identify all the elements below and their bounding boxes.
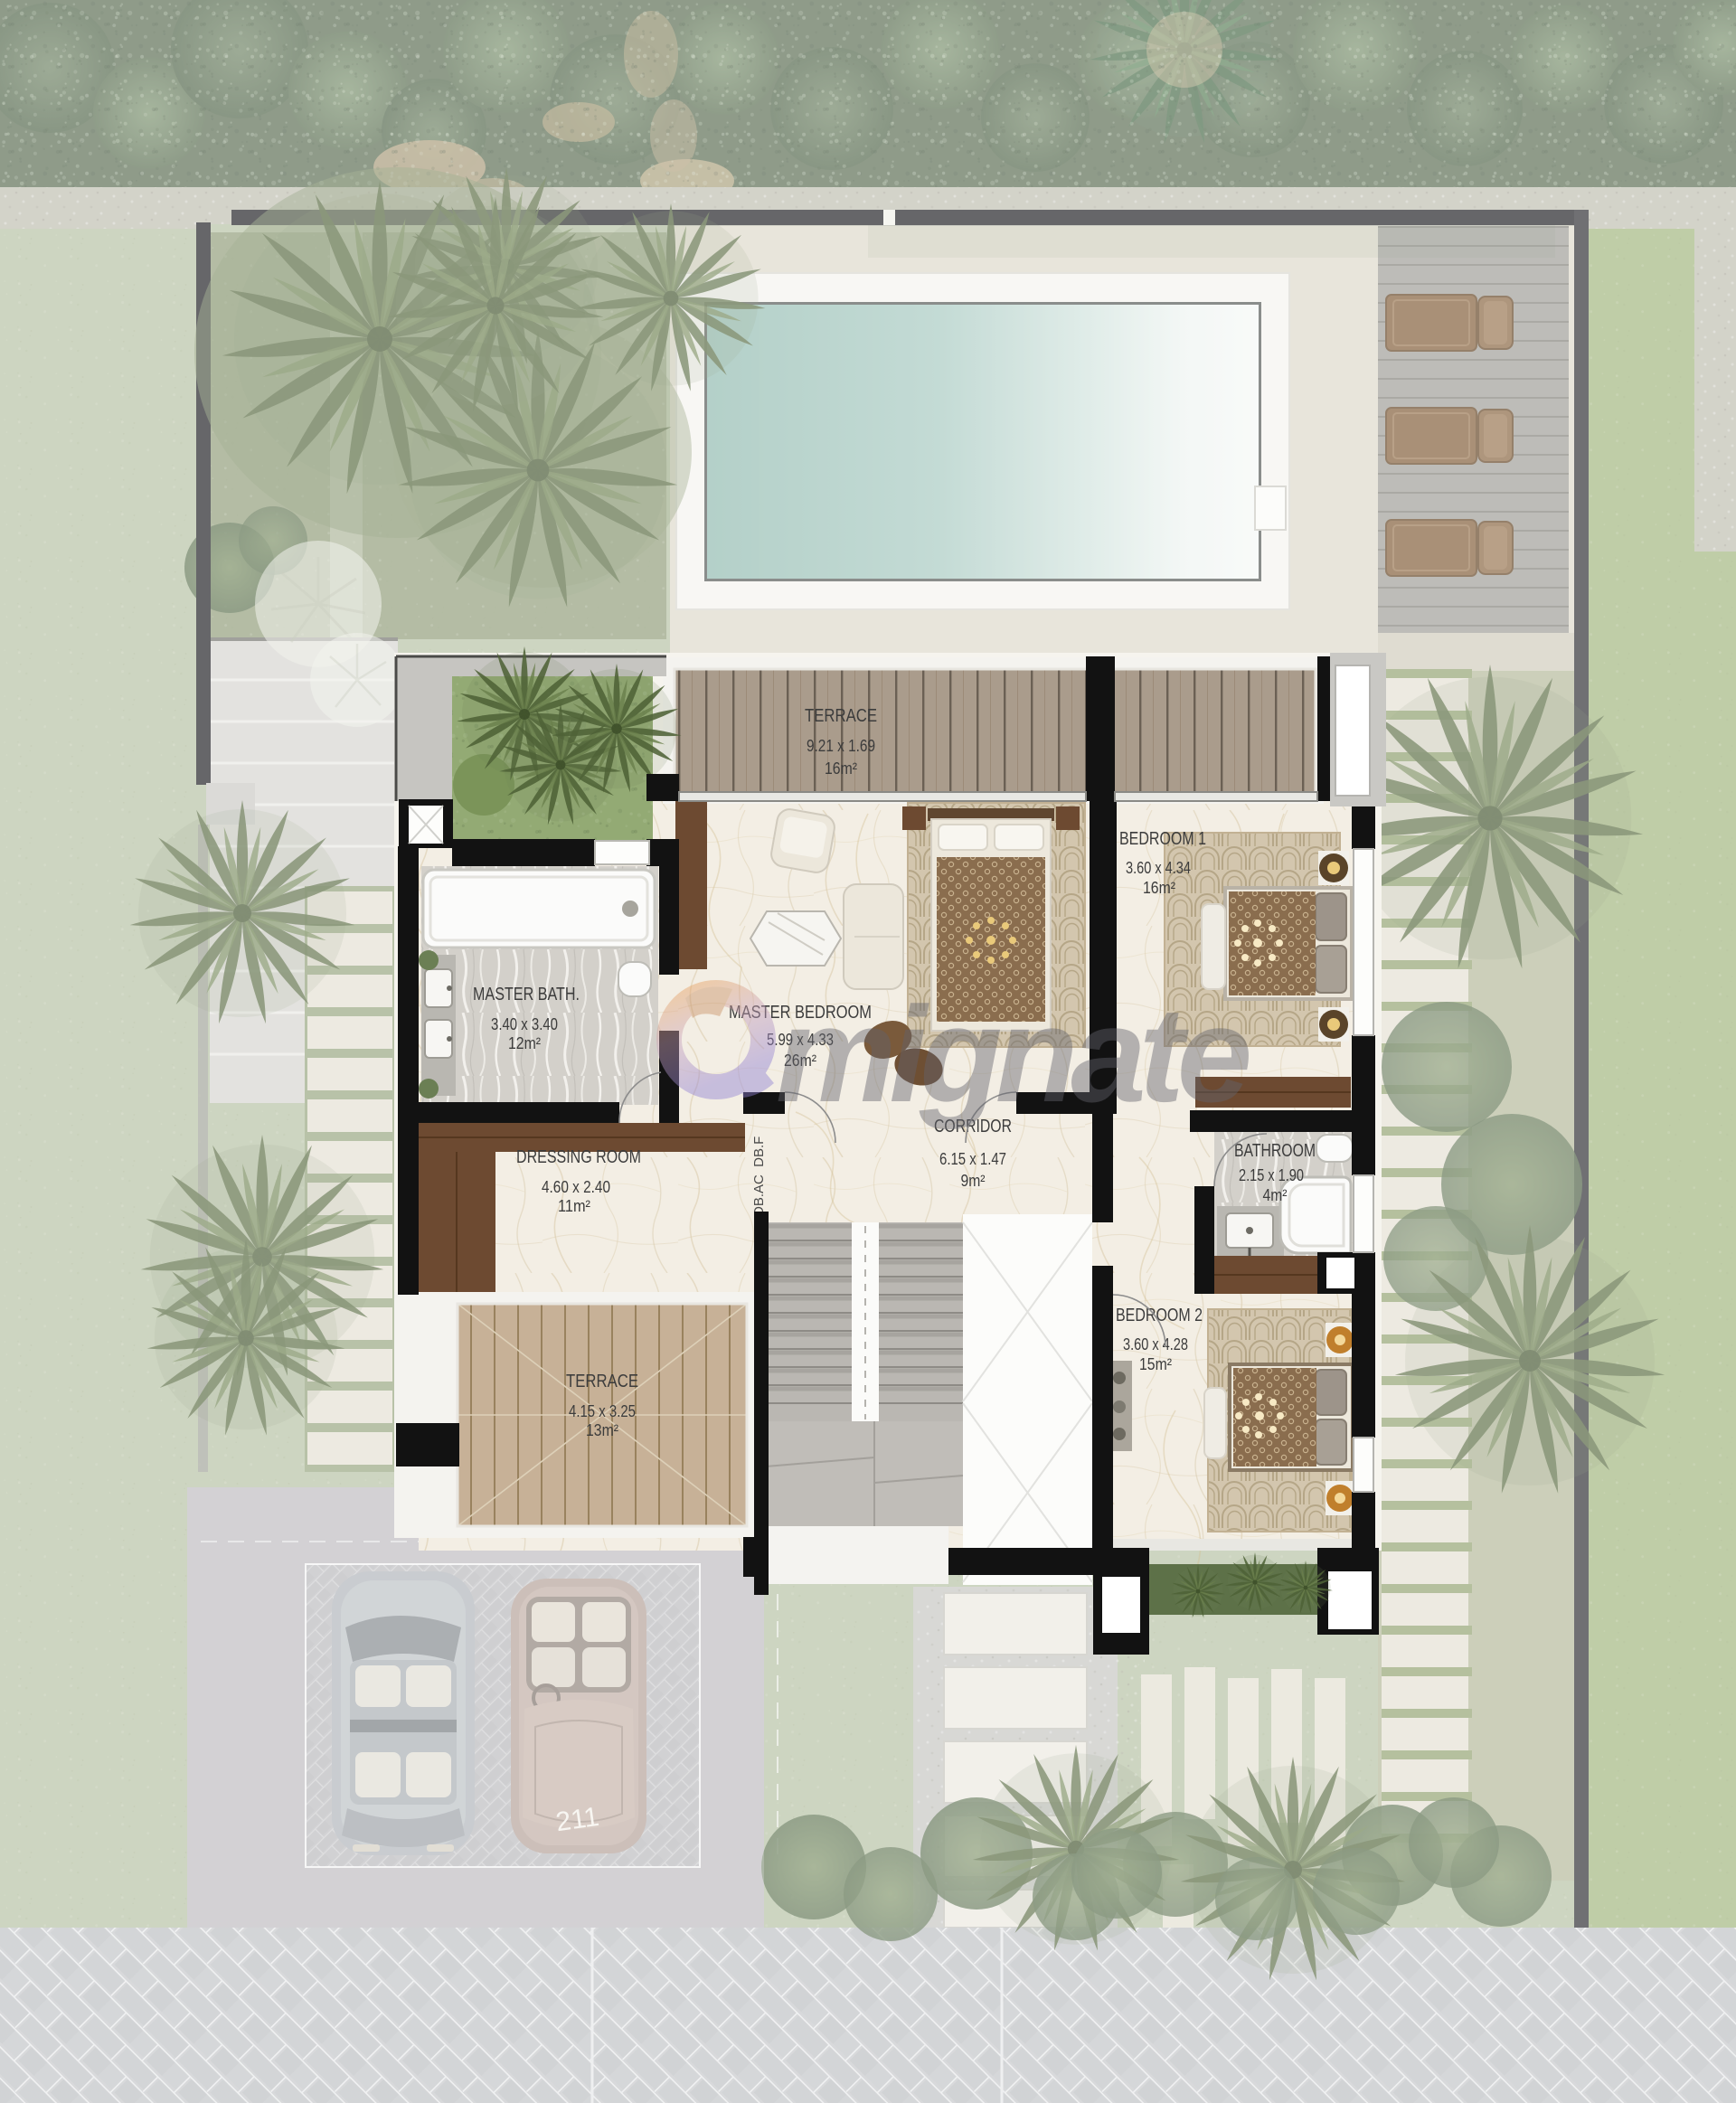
svg-text:4m²: 4m² bbox=[1263, 1186, 1288, 1204]
svg-text:BEDROOM 1: BEDROOM 1 bbox=[1119, 829, 1206, 849]
svg-text:3.60 x 4.34: 3.60 x 4.34 bbox=[1126, 859, 1191, 877]
svg-text:15m²: 15m² bbox=[1139, 1355, 1172, 1373]
svg-text:16m²: 16m² bbox=[825, 759, 857, 778]
svg-text:11m²: 11m² bbox=[558, 1197, 590, 1215]
svg-text:TERRACE: TERRACE bbox=[805, 706, 877, 726]
svg-text:3.40 x 3.40: 3.40 x 3.40 bbox=[491, 1015, 558, 1033]
svg-text:MASTER BATH.: MASTER BATH. bbox=[473, 985, 580, 1004]
svg-text:9m²: 9m² bbox=[961, 1172, 986, 1190]
svg-text:9.21 x 1.69: 9.21 x 1.69 bbox=[807, 737, 875, 755]
svg-text:16m²: 16m² bbox=[1143, 879, 1175, 897]
svg-text:4.60 x 2.40: 4.60 x 2.40 bbox=[542, 1178, 610, 1196]
svg-text:BATHROOM: BATHROOM bbox=[1234, 1141, 1316, 1161]
svg-text:DRESSING ROOM: DRESSING ROOM bbox=[516, 1147, 641, 1167]
svg-text:4.15 x 3.25: 4.15 x 3.25 bbox=[569, 1402, 636, 1420]
svg-text:13m²: 13m² bbox=[586, 1421, 618, 1439]
svg-text:12m²: 12m² bbox=[508, 1034, 541, 1052]
svg-text:2.15 x 1.90: 2.15 x 1.90 bbox=[1239, 1166, 1304, 1184]
svg-text:3.60 x 4.28: 3.60 x 4.28 bbox=[1123, 1335, 1188, 1353]
svg-text:mignate: mignate bbox=[776, 978, 1250, 1130]
svg-text:DB.AC DB.F: DB.AC DB.F bbox=[751, 1136, 767, 1216]
svg-text:TERRACE: TERRACE bbox=[566, 1372, 638, 1391]
svg-text:6.15 x 1.47: 6.15 x 1.47 bbox=[939, 1150, 1006, 1168]
